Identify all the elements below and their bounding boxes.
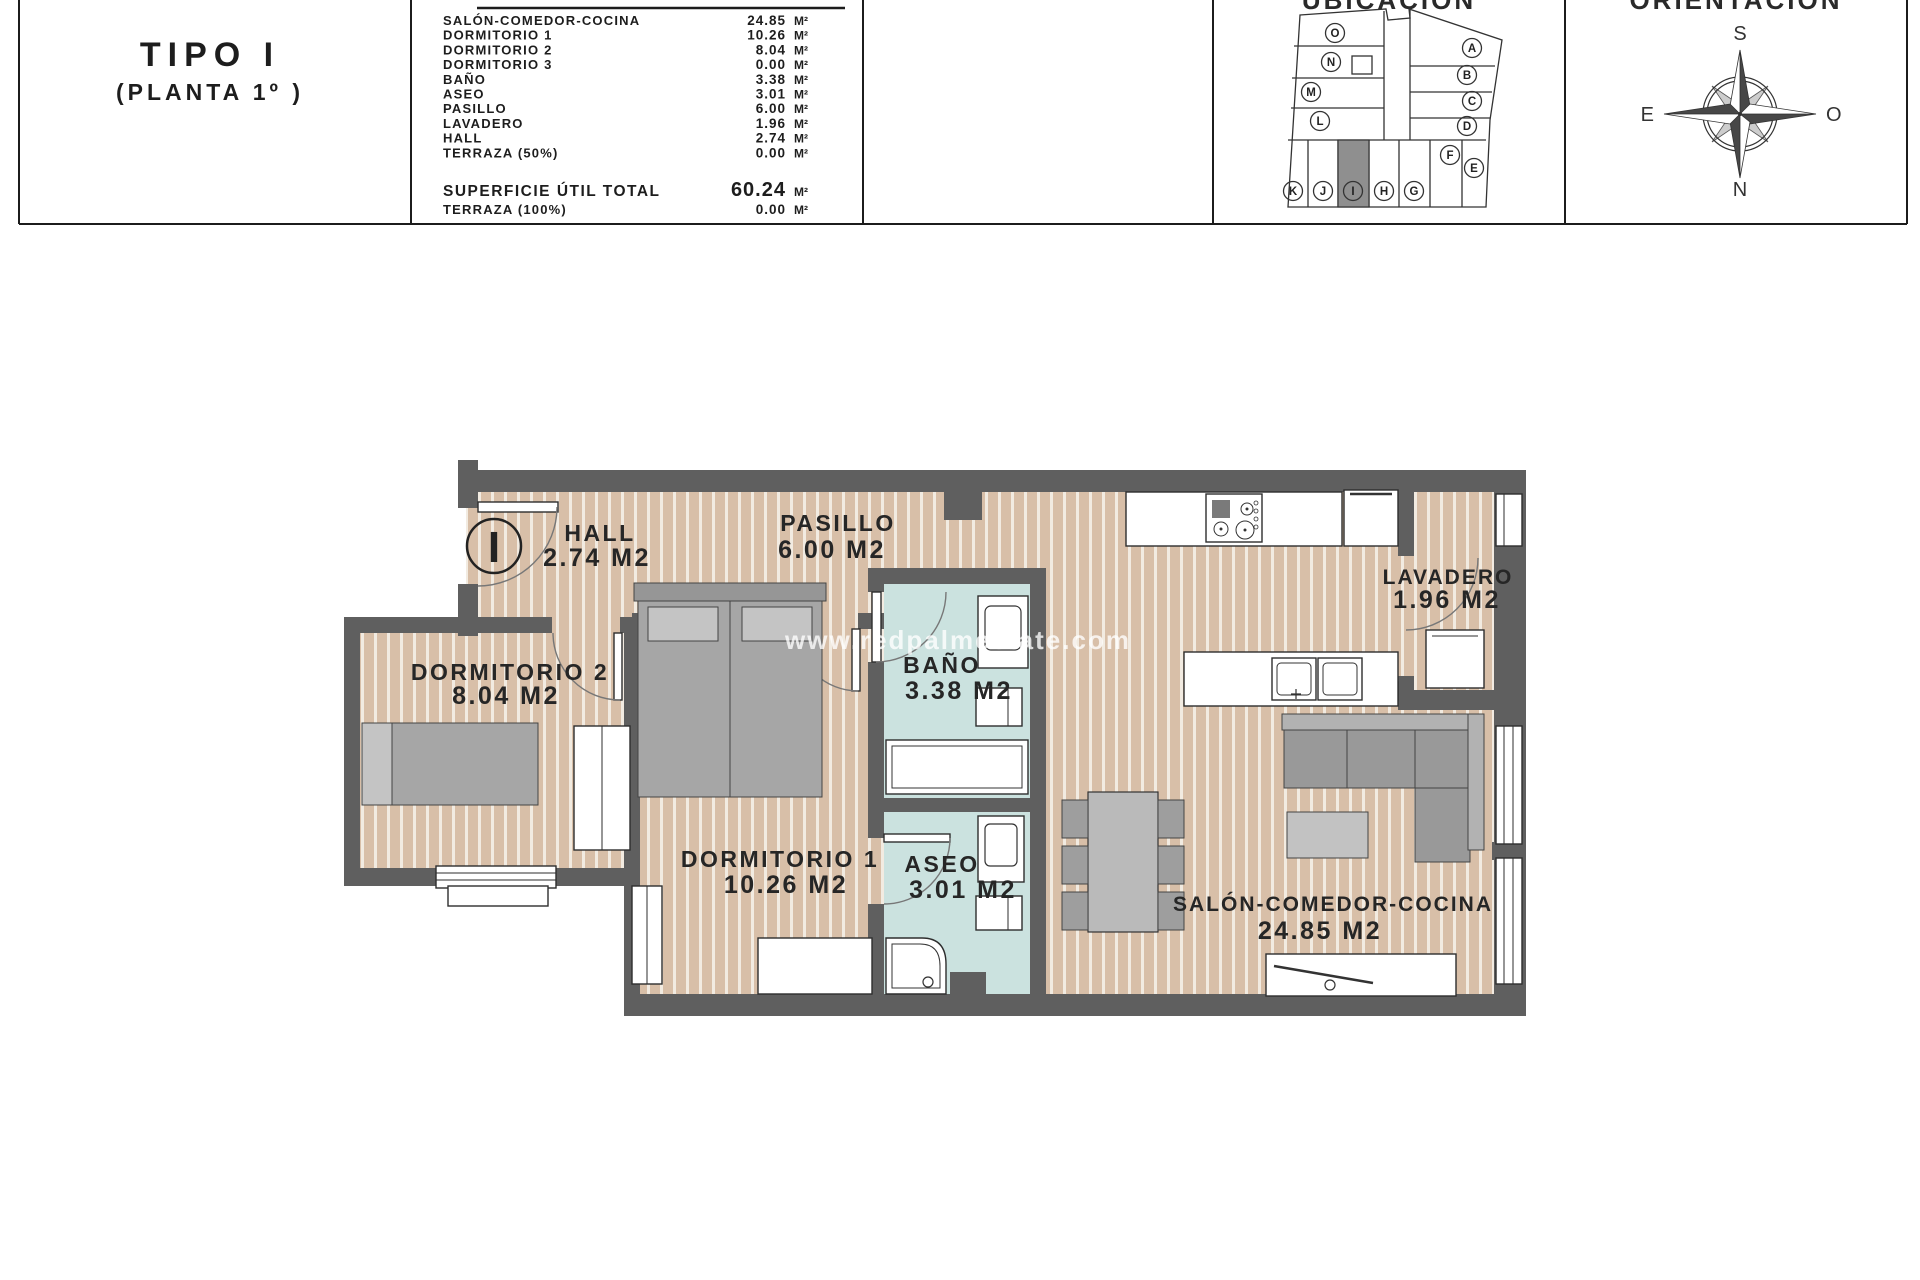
chair xyxy=(1158,846,1184,884)
tv-unit xyxy=(1266,954,1456,996)
compass-label-east: E xyxy=(1641,104,1654,126)
table-row-value: 3.38 xyxy=(756,72,786,87)
site-plan: A B C D E F G H I J K L M N O xyxy=(1284,9,1503,207)
room-label-salon: SALÓN-COMEDOR-COCINA xyxy=(1173,892,1493,916)
site-unit-l: L xyxy=(1316,116,1323,128)
table-row-label: ASEO xyxy=(443,87,485,102)
site-unit-h: H xyxy=(1380,186,1388,198)
site-internal-lines xyxy=(1288,10,1495,207)
chair xyxy=(1062,800,1088,838)
compass-rose-icon: S O N E xyxy=(1641,23,1842,201)
table-row-unit: M² xyxy=(794,58,808,72)
sofa-back xyxy=(1282,714,1484,730)
room-label-aseo: ASEO xyxy=(904,851,979,877)
bed2 xyxy=(392,723,538,805)
fridge-icon xyxy=(1344,490,1398,546)
table-row-unit: M² xyxy=(794,102,808,116)
dining-table xyxy=(1088,792,1158,932)
chair xyxy=(1062,846,1088,884)
sofa-seats xyxy=(1284,730,1470,788)
table-row-value: 10.26 xyxy=(747,28,786,43)
table-row-label: LAVADERO xyxy=(443,116,524,131)
table-row-unit: M² xyxy=(794,132,808,146)
room-label-hall: HALL xyxy=(564,520,635,546)
header-band: TIPO I (PLANTA 1º ) SALÓN-COMEDOR-COCINA… xyxy=(19,0,1907,224)
table-row-value: 24.85 xyxy=(747,13,786,28)
table-row-label: SALÓN-COMEDOR-COCINA xyxy=(443,13,640,28)
bed1-headboard xyxy=(634,583,826,601)
orientacion-title: ORIENTACIÓN xyxy=(1629,0,1842,15)
bed2-pillow xyxy=(362,723,392,805)
table-total-label: SUPERFICIE ÚTIL TOTAL xyxy=(443,182,661,200)
table-row-label: DORMITORIO 1 xyxy=(443,28,553,43)
compass-label-west: O xyxy=(1826,104,1842,126)
table-extra-value: 0.00 xyxy=(756,202,786,217)
coffee-table xyxy=(1287,812,1368,858)
table-row-unit: M² xyxy=(794,117,808,131)
room-label-dormitorio1: DORMITORIO 1 xyxy=(681,846,879,872)
site-unit-i: I xyxy=(1351,186,1354,198)
site-unit-m: M xyxy=(1306,87,1316,99)
header-dividers xyxy=(19,0,1907,224)
site-unit-o: O xyxy=(1331,28,1340,40)
table-row-unit: M² xyxy=(794,146,808,160)
watermark: www.redpalmestate.com xyxy=(784,625,1131,655)
chair xyxy=(1158,800,1184,838)
room-area-salon: 24.85 M2 xyxy=(1258,917,1382,945)
table-row-label: PASILLO xyxy=(443,101,507,116)
areas-table: SALÓN-COMEDOR-COCINA 24.85 M² DORMITORIO… xyxy=(443,13,808,217)
site-unit-c: C xyxy=(1468,96,1476,108)
site-unit-g: G xyxy=(1410,186,1419,198)
compass-label-north: N xyxy=(1733,179,1747,201)
site-unit-k: K xyxy=(1289,186,1298,198)
shower-tray-icon xyxy=(886,938,946,994)
table-row-label: DORMITORIO 2 xyxy=(443,42,553,57)
table-row-unit: M² xyxy=(794,88,808,102)
room-area-bano: 3.38 M2 xyxy=(905,677,1013,705)
room-area-dormitorio1: 10.26 M2 xyxy=(724,871,848,899)
table-row-value: 1.96 xyxy=(756,116,786,131)
site-stair-core xyxy=(1352,56,1372,74)
site-unit-b: B xyxy=(1463,70,1471,82)
table-row-value: 6.00 xyxy=(756,101,786,116)
room-area-dormitorio2: 8.04 M2 xyxy=(452,682,560,710)
table-row-value: 2.74 xyxy=(756,131,786,146)
table-row-label: BAÑO xyxy=(443,72,486,87)
room-label-pasillo: PASILLO xyxy=(780,510,895,536)
site-unit-f: F xyxy=(1446,150,1453,162)
table-row-label: HALL xyxy=(443,131,482,146)
site-unit-a: A xyxy=(1468,43,1476,55)
table-row-label: DORMITORIO 3 xyxy=(443,57,553,72)
floor-plan-page: TIPO I (PLANTA 1º ) SALÓN-COMEDOR-COCINA… xyxy=(0,0,1920,1280)
table-row-value: 8.04 xyxy=(756,42,786,57)
page-subtitle: (PLANTA 1º ) xyxy=(116,79,304,105)
compass-center-dot xyxy=(1738,112,1742,116)
table-extra-label: TERRAZA (100%) xyxy=(443,202,567,217)
dresser1 xyxy=(758,938,872,994)
site-unit-n: N xyxy=(1327,57,1335,69)
bathtub-icon xyxy=(886,740,1028,794)
floor-plan: I HALL 2.74 M2 PASILLO 6.00 M2 LAVADERO … xyxy=(344,460,1526,1016)
washer-icon xyxy=(1426,630,1484,688)
table-row-value: 3.01 xyxy=(756,87,786,102)
table-row-unit: M² xyxy=(794,14,808,28)
room-area-pasillo: 6.00 M2 xyxy=(778,536,886,564)
room-label-bano: BAÑO xyxy=(903,651,981,678)
page-title: TIPO I xyxy=(140,36,280,74)
plan-canvas: TIPO I (PLANTA 1º ) SALÓN-COMEDOR-COCINA… xyxy=(0,0,1920,1280)
table-row-label: TERRAZA (50%) xyxy=(443,145,559,160)
table-row-unit: M² xyxy=(794,29,808,43)
site-unit-e: E xyxy=(1470,163,1478,175)
table-extra-unit: M² xyxy=(794,203,808,217)
chair xyxy=(1062,892,1088,930)
unit-marker-letter: I xyxy=(488,523,500,572)
room-area-hall: 2.74 M2 xyxy=(543,544,651,572)
table-row-unit: M² xyxy=(794,43,808,57)
compass-label-south: S xyxy=(1733,23,1746,45)
sofa-chaise xyxy=(1415,788,1470,862)
table-total-unit: M² xyxy=(794,185,808,199)
room-area-lavadero: 1.96 M2 xyxy=(1393,586,1501,614)
table-row-value: 0.00 xyxy=(756,145,786,160)
table-total-value: 60.24 xyxy=(731,179,786,201)
room-area-aseo: 3.01 M2 xyxy=(909,876,1017,904)
site-unit-j: J xyxy=(1320,186,1326,198)
table-row-unit: M² xyxy=(794,73,808,87)
site-unit-d: D xyxy=(1463,121,1471,133)
table-row-value: 0.00 xyxy=(756,57,786,72)
